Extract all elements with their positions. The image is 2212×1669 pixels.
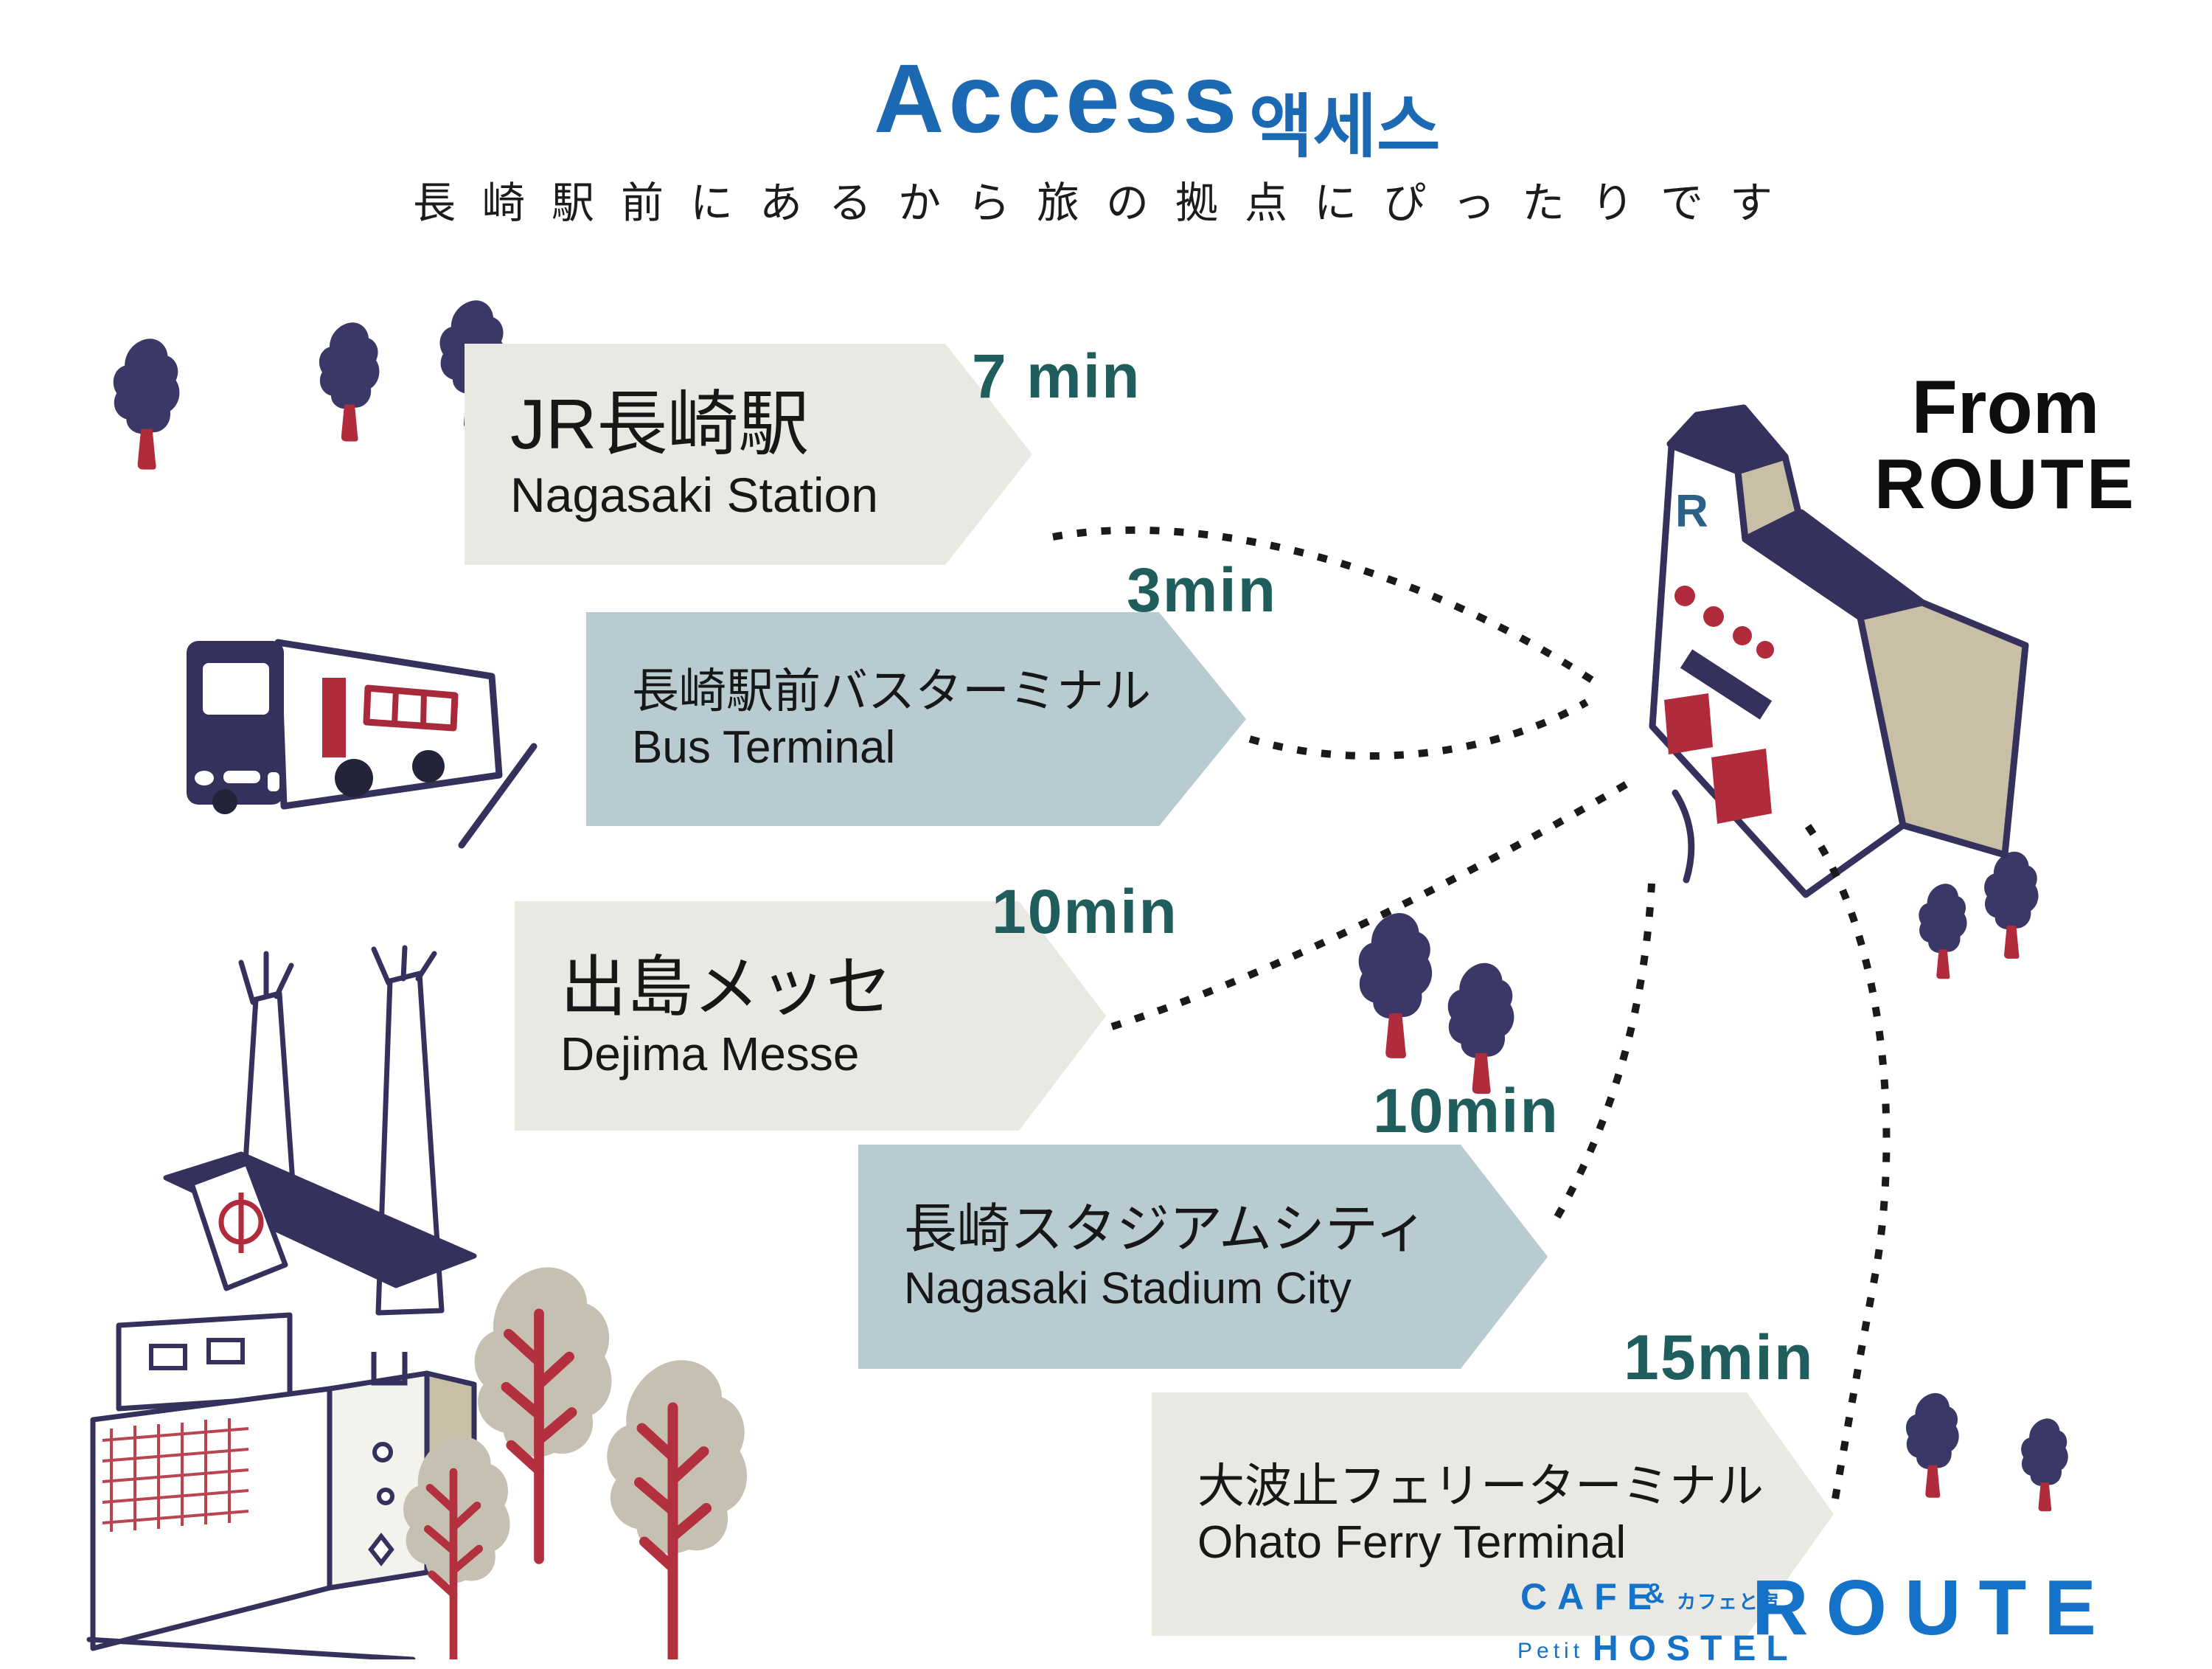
origin-from: From [1842,367,2169,447]
route-line-ferry [1808,826,1887,1503]
logo-ampersand: & [1644,1578,1664,1610]
origin-label: From ROUTE [1842,367,2169,522]
travel-time-label: 3min [1127,555,1277,626]
route-lines-layer [0,0,2212,1659]
logo-petit: Petit [1517,1639,1584,1664]
origin-name: ROUTE [1842,447,2169,522]
building-r-mark: R [1675,485,1708,538]
subtitle: 長崎駅前にあるから旅の拠点にぴったりです [0,168,2212,230]
travel-time-label: 7 min [972,341,1141,412]
logo-cafe: CAFE [1520,1575,1662,1618]
brand-logo: CAFE & カフェと宿 Petit HOSTEL ROUTE [1513,1555,2177,1659]
route-line-dejima [1112,780,1633,1027]
page-title-korean: 액세스 [1249,71,1440,171]
logo-brand: ROUTE [1752,1564,2114,1653]
route-line-bus-terminal [1250,702,1587,756]
travel-time-label: 10min [1373,1075,1559,1147]
access-infographic: Access 액세스 長崎駅前にあるから旅の拠点にぴったりです JR長崎駅 Na… [0,0,2212,1659]
travel-time-label: 15min [1624,1322,1815,1395]
travel-time-label: 10min [992,876,1178,948]
route-line-stadium [1557,884,1652,1217]
page-title: Access [874,43,1241,154]
